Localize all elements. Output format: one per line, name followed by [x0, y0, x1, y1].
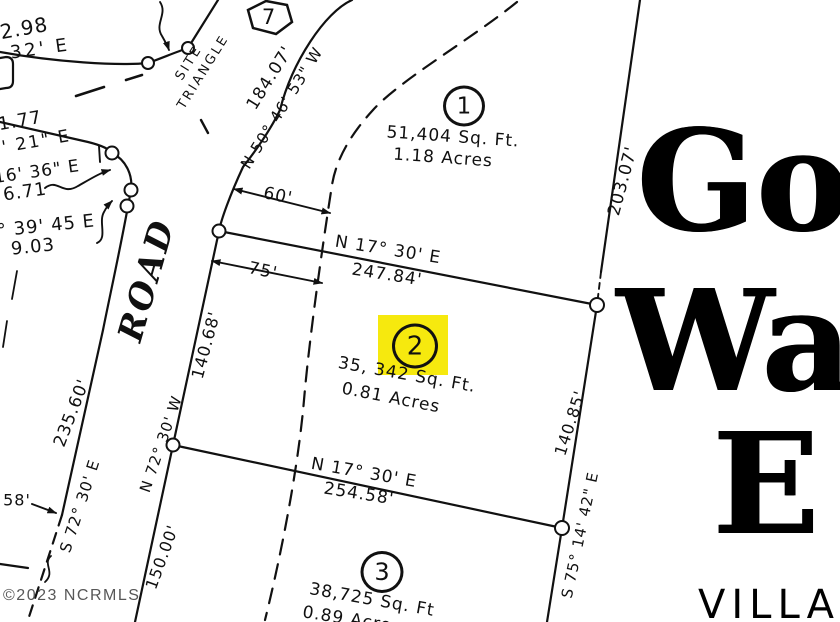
lot1-number: 1 [457, 93, 472, 119]
dim-58: 58' [3, 491, 31, 510]
lot3-number: 3 [374, 558, 389, 586]
lot3-number-circle: 3 [361, 551, 404, 593]
plat-map: Golf Walk Es VILLA [0, 0, 840, 622]
lot7-hex-number: 7 [262, 5, 276, 29]
lot2-number-circle: 2 [392, 324, 438, 369]
mls-watermark: ©2023 NCRMLS [3, 587, 140, 605]
lot1-number-circle: 1 [443, 86, 485, 127]
lot2-number: 2 [407, 331, 424, 361]
